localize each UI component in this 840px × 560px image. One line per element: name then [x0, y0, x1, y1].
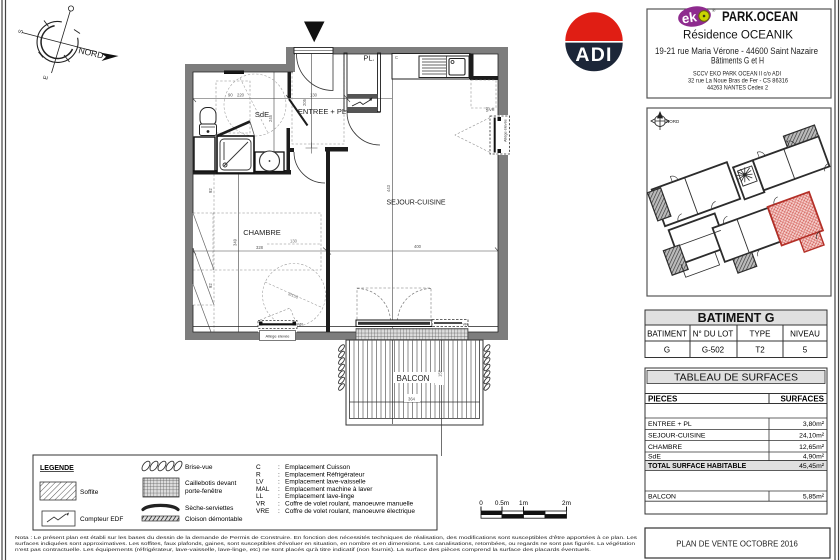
svg-text:LEGENDE: LEGENDE	[40, 465, 74, 472]
svg-text:ek: ek	[681, 9, 699, 26]
svg-text:CHAMBRE: CHAMBRE	[648, 444, 682, 451]
svg-text:1m: 1m	[519, 500, 528, 507]
svg-text:Bâtiments G et H: Bâtiments G et H	[711, 56, 764, 66]
svg-text:SdE: SdE	[255, 110, 269, 119]
svg-text:PARK.OCEAN: PARK.OCEAN	[722, 8, 798, 24]
svg-text::: :	[278, 486, 280, 493]
svg-text:Allège élevée: Allège élevée	[504, 119, 508, 142]
svg-text:3,80m²: 3,80m²	[803, 421, 825, 428]
svg-text:SCCV EKO PARK OCEAN II c/o ADI: SCCV EKO PARK OCEAN II c/o ADI	[693, 71, 781, 78]
svg-text:Emplacement Réfrigérateur: Emplacement Réfrigérateur	[285, 471, 365, 478]
svg-text:TYPE: TYPE	[750, 330, 771, 339]
svg-text:NORD: NORD	[666, 119, 680, 124]
svg-text:SURFACES: SURFACES	[780, 395, 824, 404]
svg-text:VR: VR	[463, 322, 469, 327]
svg-text:32 rue La Noue Bras de Fer - C: 32 rue La Noue Bras de Fer - CS 86316	[688, 78, 788, 85]
svg-text:VR: VR	[486, 107, 490, 112]
svg-text:0: 0	[479, 500, 483, 507]
svg-text:45,45m²: 45,45m²	[799, 463, 825, 470]
svg-text::: :	[278, 493, 280, 500]
svg-text:PIECES: PIECES	[648, 395, 678, 404]
svg-text:Soffite: Soffite	[80, 489, 99, 496]
svg-text:328: 328	[256, 245, 264, 250]
svg-text:205: 205	[302, 98, 307, 106]
svg-text:Cloison démontable: Cloison démontable	[185, 516, 243, 523]
svg-text:TOTAL SURFACE HABITABLE: TOTAL SURFACE HABITABLE	[648, 463, 747, 470]
svg-text:NIVEAU: NIVEAU	[790, 330, 820, 339]
svg-text:SEJOUR-CUISINE: SEJOUR-CUISINE	[648, 433, 706, 440]
svg-text:443: 443	[386, 184, 391, 192]
svg-text:CHAMBRE: CHAMBRE	[243, 228, 281, 237]
svg-text:0.5m: 0.5m	[495, 500, 509, 507]
svg-text:5: 5	[803, 346, 808, 355]
svg-text:VR: VR	[489, 107, 495, 112]
svg-text:LV: LV	[256, 479, 264, 486]
svg-text::: :	[278, 508, 280, 515]
svg-text:G: G	[664, 346, 670, 355]
svg-text:92: 92	[208, 188, 213, 193]
svg-text:R: R	[256, 471, 261, 478]
svg-text:BATIMENT: BATIMENT	[647, 330, 687, 339]
svg-text:130: 130	[310, 93, 318, 98]
svg-text:PLAN DE VENTE OCTOBRE 2016: PLAN DE VENTE OCTOBRE 2016	[676, 540, 798, 549]
svg-text:C: C	[256, 464, 261, 471]
svg-text:Compteur EDF: Compteur EDF	[80, 516, 123, 523]
svg-text:ADI: ADI	[575, 44, 612, 66]
svg-text::: :	[278, 501, 280, 508]
svg-text:349: 349	[233, 238, 238, 246]
svg-text:PL.: PL.	[363, 54, 374, 63]
svg-text:Emplacement Cuisson: Emplacement Cuisson	[285, 464, 350, 471]
svg-text:130: 130	[290, 239, 298, 244]
svg-text::: :	[278, 464, 280, 471]
svg-text:24,10m²: 24,10m²	[799, 433, 825, 440]
svg-text:BALCON: BALCON	[397, 374, 430, 383]
svg-text:N° DU LOT: N° DU LOT	[693, 330, 734, 339]
svg-text::: :	[278, 479, 280, 486]
svg-text:44263 NANTES Cedex 2: 44263 NANTES Cedex 2	[707, 85, 768, 92]
svg-text:Brise-vue: Brise-vue	[185, 464, 213, 471]
svg-text:400: 400	[414, 244, 422, 249]
svg-text:90: 90	[228, 93, 233, 98]
svg-text:G-502: G-502	[702, 346, 725, 355]
svg-text:BALCON: BALCON	[648, 494, 676, 501]
svg-text:BATIMENT G: BATIMENT G	[698, 311, 775, 325]
svg-text:220: 220	[237, 93, 245, 98]
svg-text:92: 92	[208, 283, 213, 288]
svg-text:Nota : Le présent plan est éta: Nota : Le présent plan est établi sur le…	[15, 535, 638, 540]
svg-text::: :	[278, 471, 280, 478]
svg-text:19-21 rue Maria Vérone - 44600: 19-21 rue Maria Vérone - 44600 Saint Naz…	[655, 46, 818, 56]
svg-text:5,85m²: 5,85m²	[803, 494, 825, 501]
svg-text:2m: 2m	[562, 500, 571, 507]
svg-text:LL: LL	[256, 493, 264, 500]
svg-text:12,65m²: 12,65m²	[799, 444, 825, 451]
svg-text:Coffre de volet roulant, manoe: Coffre de volet roulant, manoeuvre élect…	[285, 508, 415, 515]
svg-text:VR: VR	[298, 323, 303, 327]
svg-text:Coffre de volet roulant, manoe: Coffre de volet roulant, manoeuvre manue…	[285, 501, 414, 508]
svg-text:TABLEAU DE SURFACES: TABLEAU DE SURFACES	[674, 372, 798, 384]
svg-text:SdE: SdE	[648, 454, 661, 461]
svg-text:C: C	[395, 55, 398, 60]
svg-text:n'est pas contractuelle. Les é: n'est pas contractuelle. Les équipements…	[15, 547, 591, 552]
svg-text:VR: VR	[256, 501, 265, 508]
svg-text:T2: T2	[755, 346, 765, 355]
svg-text:Allège élevée: Allège élevée	[265, 334, 290, 339]
svg-text:364: 364	[408, 397, 416, 402]
svg-text:Caillebotis devant: Caillebotis devant	[185, 480, 237, 487]
svg-text:surfaces indiquées sont approx: surfaces indiquées sont approximatives. …	[15, 541, 636, 546]
svg-text:ENTREE + PL: ENTREE + PL	[648, 421, 692, 428]
svg-text:Emplacement lave-linge: Emplacement lave-linge	[285, 493, 355, 500]
svg-text:porte-fenêtre: porte-fenêtre	[185, 488, 223, 495]
svg-text:Résidence OCEANIK: Résidence OCEANIK	[683, 28, 793, 42]
svg-text:Emplacement machine à laver: Emplacement machine à laver	[285, 486, 373, 493]
svg-text:SEJOUR-CUISINE: SEJOUR-CUISINE	[386, 200, 445, 207]
svg-text:152: 152	[438, 369, 443, 377]
svg-text:Sèche-serviettes: Sèche-serviettes	[185, 505, 234, 512]
svg-text:Emplacement lave-vaisselle: Emplacement lave-vaisselle	[285, 479, 366, 486]
svg-text:MAL: MAL	[256, 486, 270, 493]
svg-text:4,90m²: 4,90m²	[803, 454, 825, 461]
svg-text:ENTREE + PL: ENTREE + PL	[298, 107, 346, 116]
svg-text:VRE: VRE	[256, 508, 270, 515]
